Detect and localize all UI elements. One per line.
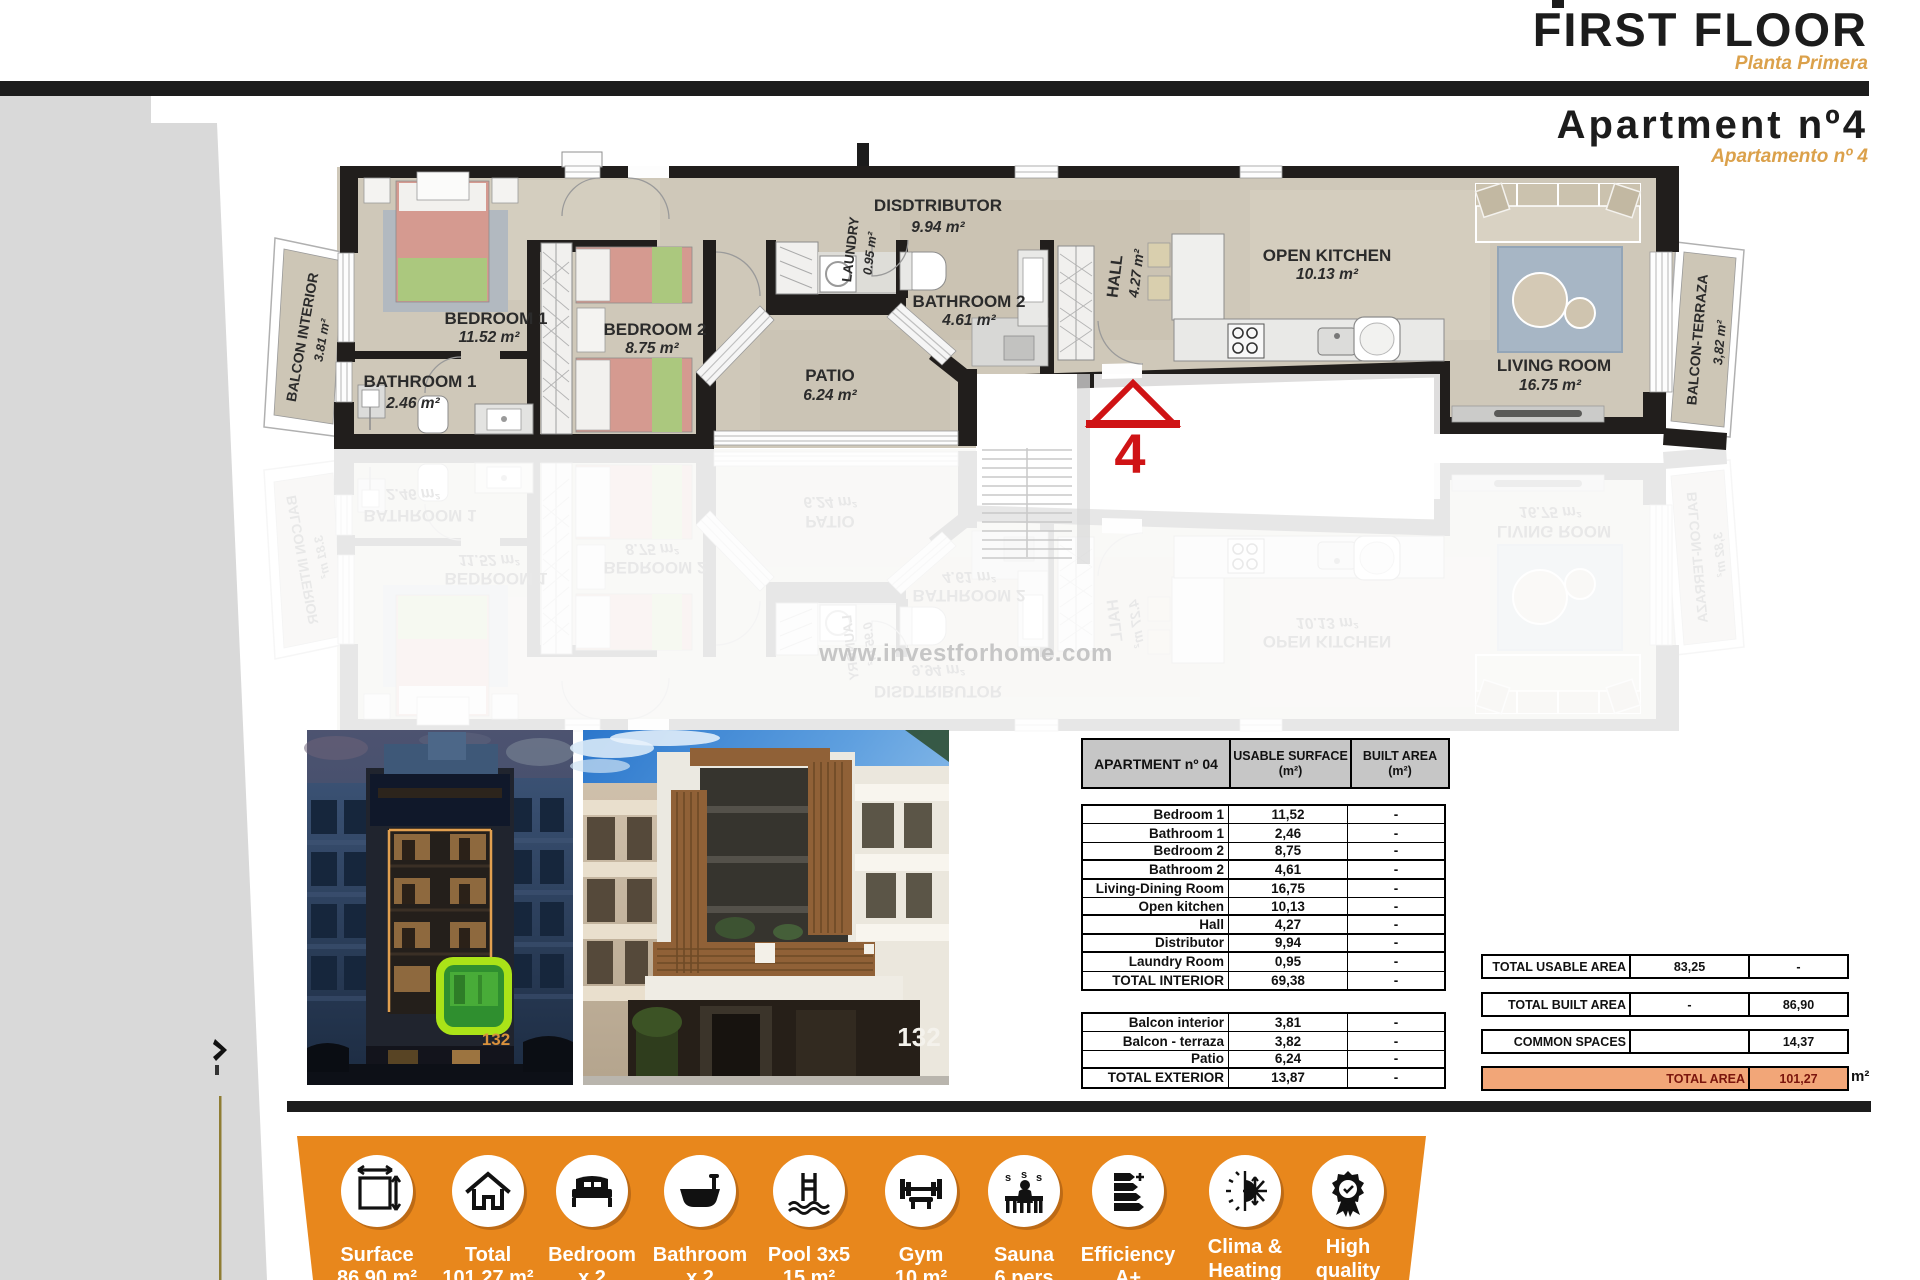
svg-text:4: 4 — [1114, 422, 1145, 485]
svg-text:Bedroom: Bedroom — [548, 1244, 636, 1266]
svg-text:A+: A+ — [1115, 1267, 1141, 1280]
svg-text:Clima &: Clima & — [1208, 1236, 1282, 1258]
svg-text:Efficiency: Efficiency — [1081, 1244, 1176, 1266]
svg-text:11.52 m²: 11.52 m² — [459, 329, 521, 346]
svg-text:15 m²: 15 m² — [783, 1267, 836, 1280]
svg-text:s: s — [1005, 1172, 1011, 1184]
svg-text:10 m²: 10 m² — [895, 1267, 948, 1280]
svg-text:PATIO: PATIO — [805, 366, 854, 385]
svg-text:Pool 3x5: Pool 3x5 — [768, 1244, 850, 1266]
svg-text:4.61 m²: 4.61 m² — [941, 312, 996, 329]
svg-text:2.46 m²: 2.46 m² — [385, 395, 440, 412]
svg-text:x 2: x 2 — [686, 1267, 714, 1280]
svg-text:10.13 m²: 10.13 m² — [1296, 266, 1359, 283]
svg-text:16.75 m²: 16.75 m² — [1519, 377, 1582, 394]
svg-text:9.94 m²: 9.94 m² — [911, 219, 965, 236]
svg-text:www.investforhome.com: www.investforhome.com — [818, 640, 1113, 667]
svg-text:Gym: Gym — [899, 1244, 943, 1266]
svg-text:BATHROOM 2: BATHROOM 2 — [912, 292, 1025, 311]
svg-text:Sauna: Sauna — [994, 1244, 1055, 1266]
svg-text:Total: Total — [465, 1244, 511, 1266]
svg-text:s: s — [1036, 1172, 1042, 1184]
svg-text:86,90 m²: 86,90 m² — [337, 1267, 417, 1280]
svg-text:8.75 m²: 8.75 m² — [625, 340, 679, 357]
svg-text:BEDROOM 2: BEDROOM 2 — [604, 320, 707, 339]
svg-text:BEDROOM 1: BEDROOM 1 — [445, 309, 548, 328]
svg-text:Surface: Surface — [340, 1244, 413, 1266]
svg-text:6 pers: 6 pers — [995, 1267, 1054, 1280]
svg-text:Bathroom: Bathroom — [653, 1244, 747, 1266]
svg-text:High: High — [1326, 1236, 1370, 1258]
svg-text:6.24 m²: 6.24 m² — [803, 387, 857, 404]
svg-text:LIVING ROOM: LIVING ROOM — [1497, 356, 1611, 375]
svg-text:OPEN KITCHEN: OPEN KITCHEN — [1263, 246, 1391, 265]
svg-text:x 2: x 2 — [578, 1267, 606, 1280]
svg-text:BATHROOM 1: BATHROOM 1 — [363, 372, 476, 391]
svg-text:s: s — [1021, 1169, 1027, 1181]
svg-text:132: 132 — [897, 1022, 940, 1052]
svg-text:Heating: Heating — [1208, 1260, 1281, 1280]
svg-text:101,27 m²: 101,27 m² — [442, 1267, 534, 1280]
svg-text:quality: quality — [1316, 1260, 1381, 1280]
svg-text:DISDTRIBUTOR: DISDTRIBUTOR — [874, 196, 1002, 215]
